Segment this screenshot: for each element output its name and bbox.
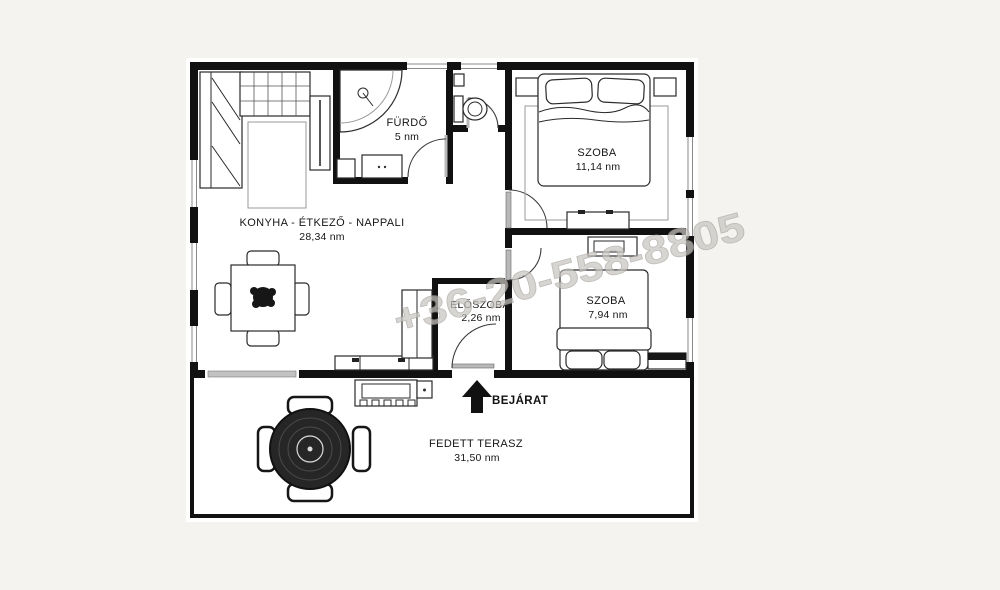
- chair-right: [353, 427, 370, 471]
- room-label-bathroom: FÜRDŐ: [386, 115, 427, 129]
- entrance-label: BEJÁRAT: [492, 394, 548, 407]
- toilet-icon: [454, 96, 487, 122]
- room-area-terrace: 31,50 nm: [454, 452, 499, 464]
- corner-sofa: [200, 72, 242, 188]
- room-label-bedroom1: SZOBA: [577, 147, 617, 159]
- window: [407, 61, 447, 71]
- foot-cabinet: [567, 210, 629, 229]
- room-area-bedroom1: 11,14 nm: [576, 161, 621, 173]
- room-label-kitchen: KONYHA - ÉTKEZŐ - NAPPALI: [239, 215, 404, 229]
- floor-plan-page: KONYHA - ÉTKEZŐ - NAPPALI 28,34 nm FÜRDŐ…: [0, 0, 1000, 590]
- terrace-door: [205, 369, 299, 379]
- window: [189, 326, 199, 362]
- window: [189, 160, 199, 207]
- nightstand-left: [516, 78, 538, 96]
- dresser-dark: [648, 353, 686, 369]
- wc-shelf: [454, 74, 464, 86]
- room-label-bedroom2: SZOBA: [586, 295, 626, 307]
- room-area-kitchen: 28,34 nm: [299, 231, 344, 243]
- room-label-terrace: FEDETT TERASZ: [429, 438, 523, 450]
- plant-icon: [250, 287, 276, 308]
- room-area-bedroom2: 7,94 nm: [588, 309, 627, 321]
- floor-plan-drawing: KONYHA - ÉTKEZŐ - NAPPALI 28,34 nm FÜRDŐ…: [0, 0, 1000, 590]
- window: [189, 243, 199, 290]
- bath-cabinet: [337, 159, 355, 178]
- washing-machine: [362, 155, 402, 178]
- nightstand-right: [654, 78, 676, 96]
- tall-cabinet: [310, 96, 330, 170]
- kitchen-counter: [240, 72, 310, 116]
- room-area-bathroom: 5 nm: [395, 131, 419, 143]
- window: [461, 61, 497, 71]
- window: [685, 137, 695, 190]
